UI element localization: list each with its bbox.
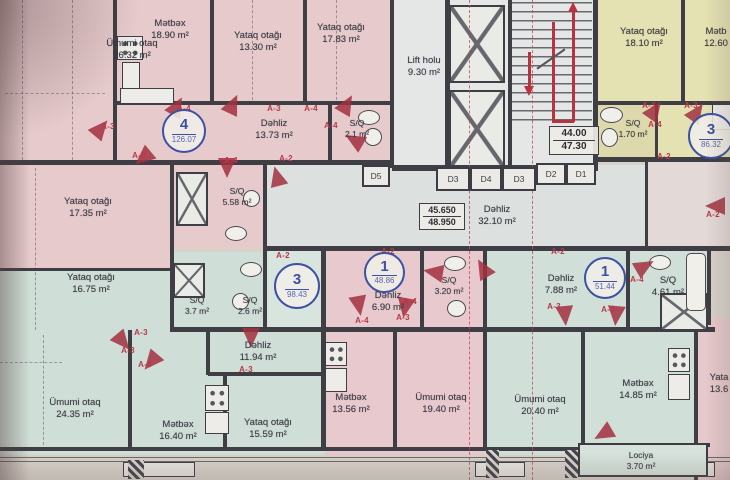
wall xyxy=(645,160,648,248)
wall xyxy=(303,0,307,103)
stove-icon xyxy=(325,342,347,366)
wall xyxy=(0,268,172,271)
axis-label: A-4 xyxy=(403,297,417,306)
room-label: Ümumi otaq24.35 m² xyxy=(49,397,100,422)
room-label: Mətbəx13.56 m² xyxy=(332,392,370,417)
axis-label: A-3 xyxy=(547,302,561,311)
wall-hatch xyxy=(486,450,499,478)
stair-path-line xyxy=(572,10,575,122)
wall xyxy=(328,103,332,165)
room-label: Lociya3.70 m² xyxy=(627,450,656,472)
toilet-icon xyxy=(240,262,262,277)
axis-label: A-4 xyxy=(355,316,369,325)
wall xyxy=(113,0,117,163)
stair-path-line xyxy=(552,22,555,122)
room-label: Dəhliz6.90 m² xyxy=(372,290,404,315)
axis-label: A-4 xyxy=(630,275,644,284)
room-label: S/Q1.70 m² xyxy=(619,118,648,140)
wall xyxy=(393,330,397,450)
dashed-line xyxy=(22,0,23,160)
elevator-shaft xyxy=(449,90,505,168)
axis-label: A-2 xyxy=(657,152,671,161)
wall-hatch xyxy=(128,460,144,479)
axis-label: A-3 xyxy=(684,101,698,110)
axis-label: A-3 xyxy=(642,101,656,110)
dashed-line xyxy=(43,335,44,445)
dashed-line xyxy=(336,0,337,100)
axis-label: A-4 xyxy=(324,121,338,130)
door-tag-d3: D3 xyxy=(436,167,470,191)
axis-label: A-2 xyxy=(276,251,290,260)
wall xyxy=(681,0,685,103)
room-label: Yataq otağı17.35 m² xyxy=(64,196,112,221)
room-label: S/Q2.6 m² xyxy=(238,295,262,317)
room-label: Ümumi otaq19.40 m² xyxy=(415,392,466,417)
unit-circle-4: 4 126.07 xyxy=(162,109,206,153)
dashed-line xyxy=(72,0,73,160)
window xyxy=(475,462,525,477)
room-label: Lift holu9.30 m² xyxy=(407,55,440,80)
sink-icon xyxy=(601,128,618,147)
room-label: Mətbəx18.90 m² xyxy=(151,18,189,43)
dashed-line xyxy=(35,168,36,330)
room-label: Dəhliz11.94 m² xyxy=(240,340,277,365)
door-tag-d1: D1 xyxy=(566,163,596,185)
wall-hatch xyxy=(565,450,579,478)
kitchen-counter xyxy=(668,374,690,400)
wall xyxy=(420,250,424,330)
door-tag-d5: D5 xyxy=(362,165,390,187)
room-label: Mətb12.60 xyxy=(704,26,728,51)
room-label: Yataq otağı18.10 m² xyxy=(620,26,668,51)
unit-circle-3-left: 3 98.43 xyxy=(274,263,320,309)
wall xyxy=(170,160,174,330)
fridge-icon xyxy=(122,62,140,90)
kitchen-counter xyxy=(205,412,229,434)
toilet-icon xyxy=(444,256,466,271)
axis-label: A-4 xyxy=(304,104,318,113)
wall xyxy=(508,0,512,172)
dashed-line xyxy=(5,93,105,94)
axis-label: A-3 xyxy=(267,104,281,113)
room-label: Mətbəx14.85 m² xyxy=(619,378,657,403)
room-label: Ümumi otaq26.32 m² xyxy=(106,38,157,63)
floor-plan: D5 D3 D4 D3 D2 D1 45.650 48.950 44.00 47… xyxy=(0,0,730,480)
axis-label: A-2 xyxy=(279,154,293,163)
wall xyxy=(445,0,450,172)
dashed-line xyxy=(0,362,62,363)
elevator-shaft xyxy=(449,5,505,83)
wall xyxy=(483,250,487,450)
room-label: Dəhliz32.10 m² xyxy=(478,204,516,229)
axis-label: A-2 xyxy=(551,247,565,256)
unit-circle-3-top: 3 86.32 xyxy=(688,113,730,159)
room-label: Mətbəx16.40 m² xyxy=(159,419,197,444)
vent-shaft xyxy=(173,263,205,298)
door-tag-d2: D2 xyxy=(536,163,566,185)
axis-label: A-4 xyxy=(224,156,238,165)
axis-label: A-3 xyxy=(601,305,615,314)
stair-path-line xyxy=(552,120,574,123)
room-label: S/Q5.58 m² xyxy=(223,186,252,208)
bathtub-icon xyxy=(686,253,706,311)
kitchen-counter xyxy=(120,88,174,104)
axis-label: A-4 xyxy=(138,360,152,369)
axis-label: A-3 xyxy=(134,328,148,337)
level-mark-corridor: 45.650 48.950 xyxy=(419,203,465,230)
wall xyxy=(0,160,392,165)
room-label: Yata13.6 xyxy=(710,372,729,397)
door-swing-mark xyxy=(348,295,369,318)
axis-label: A-3 xyxy=(239,365,253,374)
sink-icon xyxy=(447,300,466,317)
axis-label: A-3 xyxy=(101,122,115,131)
room-label: Yataq otağı17.83 m² xyxy=(317,22,365,47)
room-label: S/Q3.20 m² xyxy=(435,275,464,297)
unit-circle-1-right: 1 51.44 xyxy=(584,257,626,299)
stair-path-line xyxy=(528,52,531,86)
room-label: Ümumi otaq20.40 m² xyxy=(514,394,565,419)
vent-shaft xyxy=(176,172,208,226)
axis-label: A-3 xyxy=(121,346,135,355)
room-label: Dəhliz7.88 m² xyxy=(545,273,577,298)
stove-icon xyxy=(668,348,690,372)
wall xyxy=(265,246,730,251)
room-label: Yataq otağı15.59 m² xyxy=(244,417,292,442)
door-tag-d3b: D3 xyxy=(502,167,536,191)
axis-dashed-line xyxy=(469,0,470,480)
room-label: Yataq otağı13.30 m² xyxy=(234,30,282,55)
axis-label: A-4 xyxy=(648,120,662,129)
room-label: Yataq otağı16.75 m² xyxy=(67,272,115,297)
wall xyxy=(210,0,214,103)
door-tag-d4: D4 xyxy=(470,167,502,191)
wall xyxy=(581,332,585,447)
wall xyxy=(263,165,267,330)
wall xyxy=(626,250,630,332)
room-label: S/Q3.7 m² xyxy=(185,295,209,317)
unit-circle-1-center: 1 48.86 xyxy=(364,252,405,293)
room-label: S/Q2.1 m² xyxy=(345,118,369,140)
wall xyxy=(390,0,394,168)
room-label: Dəhliz13.73 m² xyxy=(255,118,293,143)
axis-label: A-3 xyxy=(132,151,146,160)
kitchen-counter xyxy=(325,368,347,392)
stove-icon xyxy=(205,385,229,411)
wall xyxy=(206,330,210,375)
toilet-icon xyxy=(225,226,247,241)
axis-label: A-2 xyxy=(706,210,720,219)
level-mark-stairs: 44.00 47.30 xyxy=(549,126,599,155)
room-label: S/Q4.61 m² xyxy=(652,275,684,300)
stair-up-arrow xyxy=(568,2,578,12)
